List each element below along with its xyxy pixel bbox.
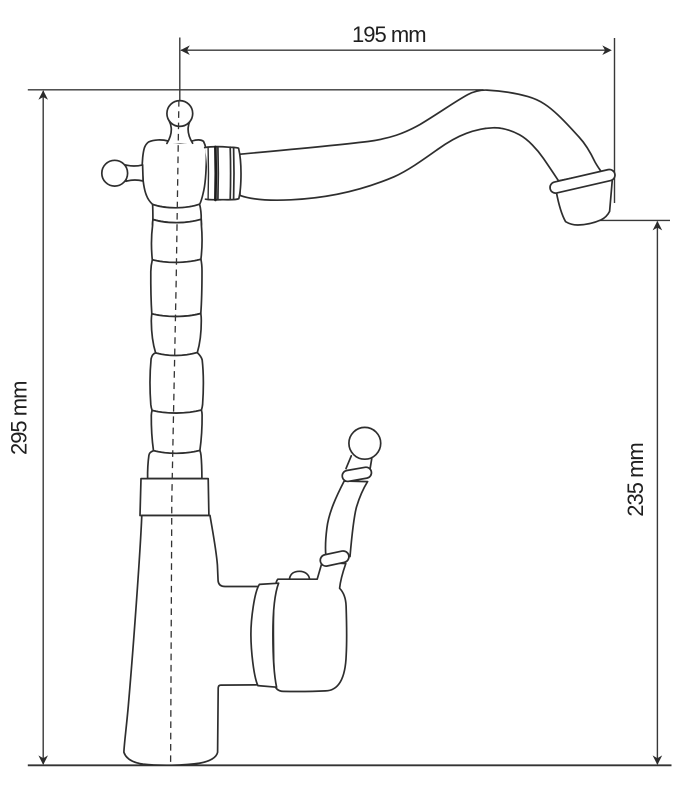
svg-text:195 mm: 195 mm — [352, 22, 425, 47]
svg-text:235 mm: 235 mm — [623, 443, 648, 516]
svg-text:295 mm: 295 mm — [7, 382, 32, 455]
